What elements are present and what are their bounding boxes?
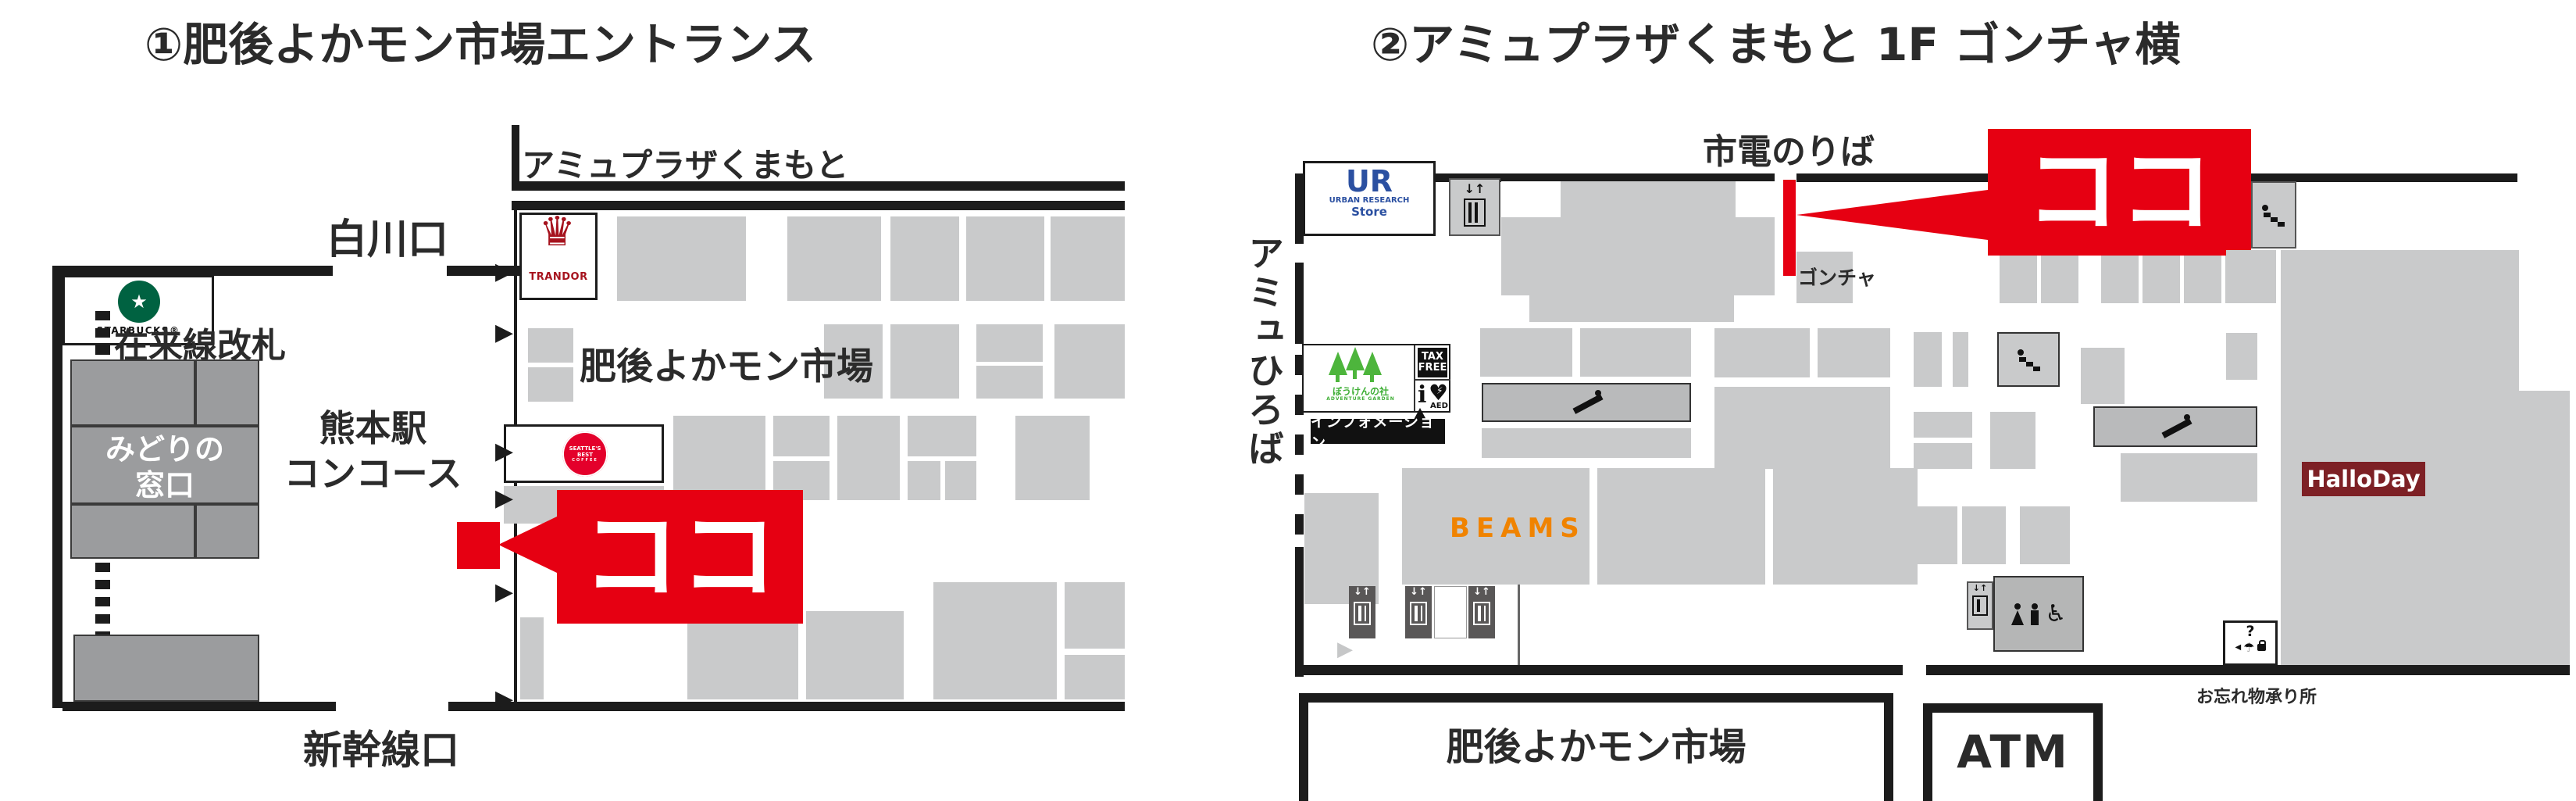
direction-arrow-icon: ▶ — [495, 319, 513, 346]
shop-block — [787, 216, 881, 301]
tree-trunk — [1370, 374, 1374, 382]
shop-block — [1065, 582, 1125, 649]
shop-block — [806, 611, 904, 699]
wall — [512, 181, 1125, 191]
atm-label: ATM — [1932, 725, 2093, 778]
shop-block — [890, 216, 959, 301]
gate-dash — [1295, 514, 1304, 535]
shop-block — [2143, 256, 2180, 303]
shop-block — [1914, 443, 1972, 469]
free-label: FREE — [1418, 363, 1447, 374]
shop-block — [2041, 256, 2078, 303]
shop-block — [976, 366, 1043, 399]
elevator-arrows-icon: ↓↑ — [1450, 181, 1499, 196]
shop-block — [1914, 506, 1957, 564]
shop-block — [976, 324, 1043, 362]
shinkansen-exit-label: 新幹線口 — [303, 719, 459, 775]
shop-block — [528, 367, 573, 402]
shop-block — [520, 617, 544, 699]
tax-free-sign: TAX FREE — [1418, 348, 1447, 377]
urban-research-shop: UR URBAN RESEARCH Store — [1303, 161, 1436, 236]
shop-block — [528, 328, 573, 363]
escalator-area — [2093, 406, 2257, 447]
shirakawa-exit-label: 白川口 — [326, 206, 448, 265]
gate-dash — [1295, 474, 1304, 495]
shop-block — [890, 324, 959, 399]
trandor-label: TRANDOR — [522, 271, 595, 283]
shop-block — [1714, 328, 1810, 377]
direction-arrow-icon: ▶ — [495, 438, 513, 465]
station-block — [70, 359, 195, 426]
tax-label: TAX — [1422, 352, 1443, 363]
elevator-arrows-icon: ↓↑ — [1405, 586, 1432, 598]
aed-label: AED — [1430, 402, 1448, 410]
location-marker — [457, 522, 500, 569]
shop-block — [1773, 468, 1918, 585]
halloday-building — [2519, 391, 2570, 665]
shop-block — [1962, 506, 2006, 564]
lost-and-found-label: お忘れ物承り所 — [2196, 683, 2306, 708]
shop-block — [2101, 256, 2139, 303]
beams-label: BEAMS — [1450, 513, 1586, 544]
wheelchair-icon: ♿ — [2046, 600, 2067, 628]
elevator-icon — [1354, 602, 1371, 625]
koko-label: ココ — [583, 508, 778, 606]
shop-block — [2000, 256, 2037, 303]
shop-block — [1914, 412, 1972, 438]
question-icon: ? — [2225, 623, 2275, 640]
tree-trunk — [1336, 374, 1340, 382]
trandor-shop: ♛ TRANDOR — [519, 213, 598, 300]
woman-icon — [2011, 603, 2024, 625]
shop-block — [1818, 328, 1890, 377]
koko-label: ココ — [2026, 145, 2214, 239]
gate-dash — [95, 345, 110, 355]
elevator-icon — [1972, 595, 1988, 616]
gate-dash — [95, 311, 110, 320]
elevator-area: ↓↑ — [1967, 581, 1993, 630]
stairs-area — [2251, 181, 2296, 249]
station-map-page: ①肥後よかモン市場エントランス アミュプラザくまもと 白川口 ★ STARBUC… — [0, 0, 2576, 801]
wall — [1295, 263, 1304, 344]
shop-block — [2121, 453, 2257, 502]
seattles-best-label: SEATTLE'S BEST — [562, 445, 608, 458]
shop-block — [1990, 412, 2035, 469]
shop-block — [1015, 416, 1090, 500]
shop-block — [673, 416, 765, 500]
ur-logo: UR URBAN RESEARCH Store — [1305, 166, 1433, 219]
star-icon: ★ — [130, 291, 148, 313]
tree-trunk — [1353, 370, 1357, 379]
midori-no-madoguchi: みどりの 窓口 — [70, 426, 259, 504]
shop-block — [2081, 348, 2125, 404]
gate-dash — [95, 563, 110, 572]
gongcha-label: ゴンチャ — [1798, 263, 1876, 291]
wall — [2093, 703, 2103, 801]
tree-icon — [1363, 352, 1382, 375]
escalator-icon — [2160, 413, 2194, 440]
station-block — [195, 359, 259, 426]
location-marker-bar — [1783, 180, 1796, 276]
information-i-icon: i — [1418, 381, 1426, 409]
halloday-label: HalloDay — [2307, 466, 2420, 492]
bag-icon — [2257, 644, 2266, 651]
midori-label-line1: みどりの — [72, 432, 258, 468]
direction-arrow-icon: ▶ — [495, 578, 513, 606]
seattles-best-shop: SEATTLE'S BEST COFFEE — [504, 424, 664, 483]
shop-block — [1065, 655, 1125, 699]
shop-block — [2020, 506, 2070, 564]
umbrella-icon: ☂ — [2243, 640, 2254, 655]
elevator-arrows-icon: ↓↑ — [1468, 586, 1495, 598]
koko-arrow — [1796, 190, 1988, 240]
shop-block — [908, 416, 976, 456]
direction-arrow-icon: ▶ — [495, 258, 513, 285]
station-block — [195, 504, 259, 559]
shop-block — [966, 216, 1044, 301]
lost-and-found: ? ◀ ☂ — [2223, 620, 2278, 666]
wall — [1926, 665, 2570, 675]
wall — [512, 201, 1125, 210]
restroom-area: ♿ — [1993, 576, 2084, 652]
gate-dash — [95, 580, 110, 589]
shop-block — [1529, 295, 1734, 322]
floor-notch — [1736, 181, 1775, 217]
market-label-left: 肥後よかモン市場 — [580, 336, 873, 390]
amu-plaza-label: アミュプラザくまもと — [522, 139, 848, 187]
elevator-shaft: ↓↑ — [1468, 586, 1495, 638]
elevator-icon — [1464, 198, 1486, 227]
wall — [1295, 547, 1304, 677]
aed-bolt-icon: ⚡ — [1436, 385, 1443, 396]
station-block — [73, 635, 259, 702]
elevator-arrows-icon: ↓↑ — [1349, 586, 1375, 598]
concourse-label: 熊本駅 コンコース — [269, 406, 476, 496]
crown-icon: ♛ — [539, 209, 576, 256]
market-label-right: 肥後よかモン市場 — [1308, 716, 1884, 771]
gate-dash — [1295, 434, 1304, 455]
starbucks-icon: ★ — [118, 281, 160, 323]
shop-block — [933, 582, 1057, 699]
shiden-noriba-label: 市電のりば — [1703, 123, 1875, 173]
shop-block — [617, 216, 746, 301]
shop-block — [1054, 324, 1125, 399]
shop-block — [773, 416, 830, 456]
direction-arrow-icon: ▶ — [495, 685, 513, 713]
wall — [1295, 665, 1903, 675]
adventure-garden-logo: ぼうけんの社 ADVENTURE GARDEN — [1310, 347, 1411, 411]
corridor-divider — [1518, 585, 1520, 665]
wall — [1923, 703, 2103, 713]
shop-block — [945, 461, 976, 500]
escalator-area — [1482, 383, 1691, 422]
right-map-title: ②アミュプラザくまもと 1F ゴンチャ横 — [1371, 8, 2181, 73]
wall — [1299, 693, 1893, 703]
wall — [1299, 693, 1308, 801]
seattles-best-icon: SEATTLE'S BEST COFFEE — [562, 431, 608, 477]
info-aed-cell: i ♥ ⚡ AED — [1416, 381, 1450, 411]
wall — [62, 702, 336, 711]
shop-block — [1714, 387, 1890, 469]
stairs-icon — [2260, 203, 2289, 227]
shop-block — [1480, 328, 1572, 377]
shop-block — [1597, 468, 1765, 585]
ur-store-label: Store — [1305, 205, 1433, 219]
shop-block — [1914, 332, 1942, 387]
left-map-title: ①肥後よかモン市場エントランス — [144, 8, 816, 73]
information-sign: インフォメーション — [1311, 419, 1445, 444]
escalator-icon — [1571, 389, 1605, 416]
gate-dash — [95, 328, 110, 338]
amu-hiroba-label: アミュひろば — [1238, 234, 1290, 438]
seattles-coffee-label: COFFEE — [572, 458, 598, 463]
shop-block — [1051, 216, 1125, 301]
facilities-divider — [1414, 345, 1415, 411]
elevator-lobby — [1434, 586, 1467, 638]
wall — [448, 702, 1125, 711]
shop-block — [2226, 250, 2276, 303]
elevator-shaft: ↓↑ — [1349, 586, 1375, 638]
shop-block — [687, 611, 798, 699]
elevator-area: ↓↑ — [1449, 178, 1500, 236]
shop-block — [1953, 332, 1968, 387]
shop-block — [2226, 333, 2257, 380]
arrow-left-icon: ◀ — [2235, 643, 2241, 652]
urban-research-label: URBAN RESEARCH — [1305, 196, 1433, 205]
tree-icon — [1329, 352, 1347, 375]
stairs-area — [1997, 332, 2060, 387]
direction-arrow-icon: ▶ — [1337, 638, 1353, 661]
koko-callout-right: ココ — [1988, 129, 2251, 256]
elevator-shaft: ↓↑ — [1405, 586, 1432, 638]
adventure-garden-label: ADVENTURE GARDEN — [1310, 396, 1411, 402]
tree-icon — [1346, 347, 1365, 370]
station-block — [70, 504, 195, 559]
gate-dash — [95, 597, 110, 606]
halloday-sign: HalloDay — [2302, 462, 2425, 496]
elevator-icon — [1473, 602, 1490, 625]
shop-block — [1580, 328, 1691, 377]
halloday-building — [2281, 250, 2519, 665]
facilities-strip: ぼうけんの社 ADVENTURE GARDEN TAX FREE i ♥ ⚡ A… — [1302, 344, 1450, 413]
midori-label-line2: 窓口 — [72, 468, 258, 504]
wall — [1884, 693, 1893, 801]
wall — [1923, 703, 1932, 801]
shop-block — [908, 461, 940, 500]
gate-dash — [95, 614, 110, 624]
koko-callout-left: ココ — [557, 490, 803, 624]
lost-found-icons: ◀ ☂ — [2225, 640, 2275, 655]
elevator-icon — [1410, 602, 1427, 625]
ur-label: UR — [1305, 166, 1433, 196]
wall — [52, 266, 62, 708]
direction-arrow-icon: ▶ — [495, 485, 513, 512]
shop-block — [2184, 256, 2221, 303]
floor-notch — [1501, 181, 1561, 217]
man-icon — [2030, 603, 2039, 625]
information-label: インフォメーション — [1311, 410, 1445, 452]
elevator-arrows-icon: ↓↑ — [1968, 583, 1992, 593]
shop-block — [837, 416, 900, 500]
concourse-label-line1: 熊本駅 — [269, 406, 476, 452]
shop-block — [1482, 428, 1691, 458]
koko-arrow — [498, 517, 557, 573]
stairs-icon — [2016, 348, 2044, 371]
concourse-label-line2: コンコース — [269, 452, 476, 497]
